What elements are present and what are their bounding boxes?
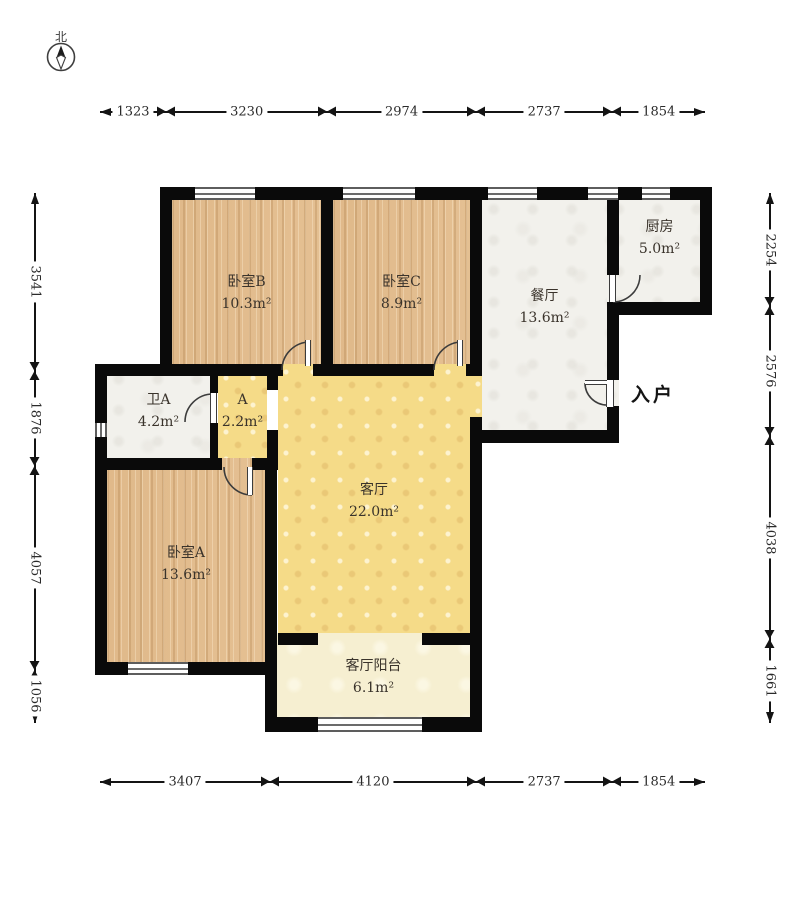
dim-label: 3541 (28, 262, 43, 303)
dim-label: 2576 (763, 351, 778, 392)
dim-label: 2737 (524, 105, 565, 120)
dim-arrow (694, 108, 705, 116)
dim-tick (30, 362, 41, 380)
dim-label: 1876 (28, 398, 43, 439)
dim-arrow (694, 778, 705, 786)
dim-tick (765, 297, 776, 315)
dim-tick (467, 777, 485, 788)
dim-label: 2974 (381, 105, 422, 120)
dim-label: 2737 (524, 775, 565, 790)
dim-label: 3407 (165, 775, 206, 790)
dim-label: 3230 (226, 105, 267, 120)
dim-label: 1056 (28, 676, 43, 717)
dim-label: 1661 (763, 661, 778, 702)
dimension-lines: 1323323029742737185434074120273718543541… (0, 0, 805, 919)
dim-tick (467, 107, 485, 118)
dim-arrow (31, 193, 39, 204)
dim-tick (30, 457, 41, 475)
dim-arrow (100, 778, 111, 786)
dim-label: 2254 (763, 229, 778, 270)
dim-arrow (100, 108, 111, 116)
dim-tick (318, 107, 336, 118)
dim-label: 4038 (763, 517, 778, 558)
dim-label: 1854 (638, 775, 679, 790)
dim-label: 4120 (352, 775, 393, 790)
dim-tick (261, 777, 279, 788)
dim-label: 1323 (112, 105, 153, 120)
dim-arrow (766, 193, 774, 204)
dim-tick (603, 107, 621, 118)
dim-arrow (766, 712, 774, 723)
dim-label: 1854 (638, 105, 679, 120)
dim-tick (765, 427, 776, 445)
dim-tick (603, 777, 621, 788)
floor-plan: 卧室B 10.3m² 卧室C 8.9m² 餐厅 13.6m² 厨房 5.0m² … (0, 0, 805, 919)
dim-tick (765, 630, 776, 648)
dim-label: 4057 (28, 547, 43, 588)
dim-tick (157, 107, 175, 118)
